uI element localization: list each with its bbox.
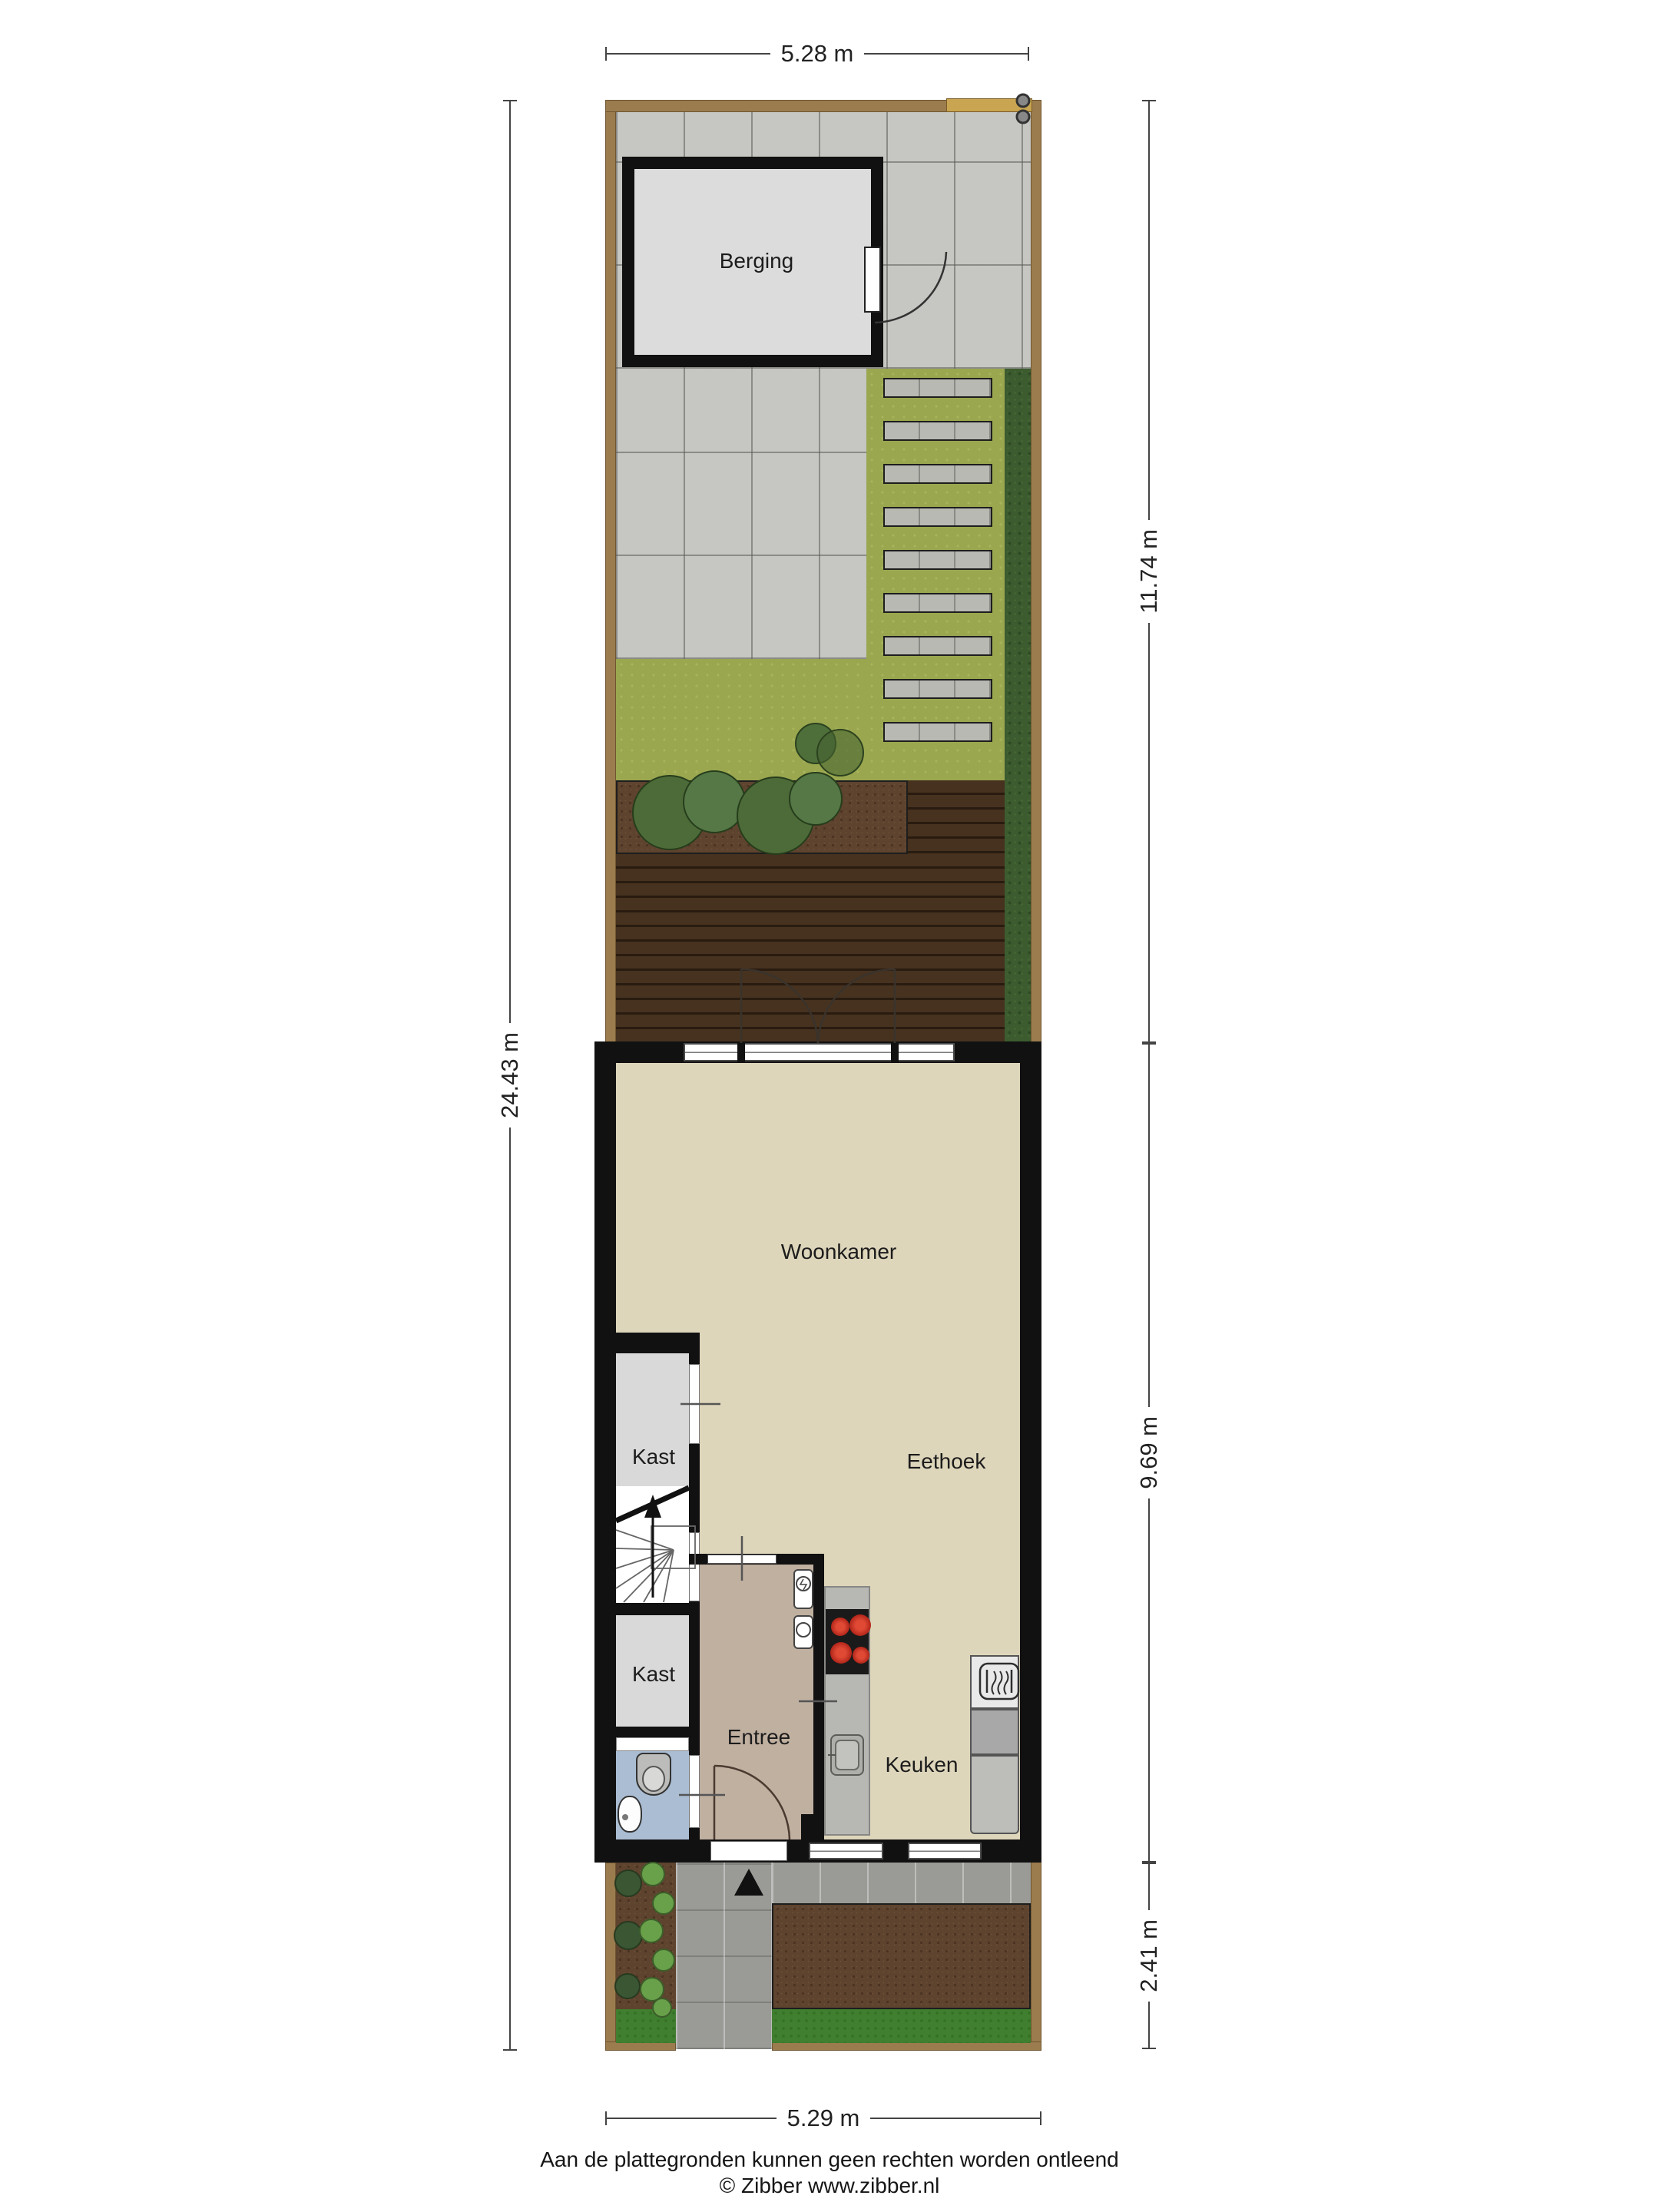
dimension-right-front-label: 2.41 m bbox=[1135, 1910, 1163, 2002]
back-garden-lawn bbox=[616, 659, 866, 783]
dimension-line bbox=[864, 53, 1028, 55]
dimension-line bbox=[1148, 101, 1150, 520]
front-window-2 bbox=[908, 1843, 982, 1859]
dimension-line bbox=[1148, 1045, 1150, 1407]
kitchen-wall bbox=[813, 1554, 824, 1839]
dimension-line bbox=[1148, 623, 1150, 1041]
stepping-stone bbox=[883, 378, 992, 398]
stepping-stone bbox=[883, 636, 992, 656]
dimension-line bbox=[509, 101, 511, 1023]
dimension-top-label: 5.28 m bbox=[770, 40, 865, 68]
front-path bbox=[676, 1863, 772, 2049]
front-lawn-right bbox=[772, 2009, 1031, 2043]
room-label-eethoek: Eethoek bbox=[907, 1449, 986, 1474]
dimension-right-garden: 11.74 m bbox=[1135, 100, 1163, 1043]
tall-unit-base bbox=[970, 1755, 1019, 1834]
floor-plan-page: 5.28 m 5.29 m 24.43 m 11.74 m 9.69 m 2.4… bbox=[0, 0, 1659, 2212]
dimension-tick bbox=[1040, 2111, 1041, 2125]
closet2-bottom-wall bbox=[616, 1727, 689, 1737]
toilet-icon bbox=[636, 1753, 671, 1796]
toilet-threshold bbox=[616, 1737, 689, 1751]
staircase-floor bbox=[616, 1486, 697, 1603]
room-label-keuken: Keuken bbox=[886, 1753, 959, 1777]
cooktop-burner bbox=[849, 1614, 871, 1636]
tall-unit-mid bbox=[970, 1709, 1019, 1755]
back-garden-paving-left bbox=[616, 369, 866, 659]
cooktop-burner bbox=[853, 1647, 869, 1664]
planting-bed bbox=[616, 780, 908, 854]
garden-hedge bbox=[1005, 369, 1031, 1045]
stepping-stone bbox=[883, 507, 992, 527]
front-paving-right bbox=[772, 1863, 1031, 1905]
dimension-left: 24.43 m bbox=[496, 100, 524, 2051]
cooktop-burner bbox=[830, 1642, 852, 1664]
wall-fixture-icon bbox=[793, 1569, 813, 1609]
hall-wall-segment bbox=[689, 1444, 700, 1532]
dimension-left-label: 24.43 m bbox=[496, 1023, 524, 1128]
dimension-line bbox=[607, 2118, 777, 2119]
front-soil-bed-right bbox=[772, 1903, 1031, 2009]
toilet-door bbox=[689, 1755, 700, 1828]
garden-gate bbox=[946, 98, 1032, 112]
house-wall-left bbox=[594, 1041, 616, 1863]
dimension-line bbox=[509, 1128, 511, 2049]
stepping-stone bbox=[883, 593, 992, 613]
hall-wall-segment bbox=[689, 1333, 700, 1364]
deck-terrace bbox=[616, 854, 1005, 1045]
fence-front-left bbox=[605, 1863, 616, 2051]
dimension-right-house: 9.69 m bbox=[1135, 1043, 1163, 1863]
house-wall-right bbox=[1020, 1041, 1041, 1863]
dimension-bottom: 5.29 m bbox=[605, 2104, 1041, 2132]
hall-wall-segment bbox=[689, 1601, 700, 1755]
dimension-line bbox=[1148, 2002, 1150, 2048]
hall-wall-segment bbox=[689, 1828, 700, 1839]
copyright-text: © Zibber www.zibber.nl bbox=[720, 2174, 940, 2198]
dimension-bottom-label: 5.29 m bbox=[777, 2104, 871, 2132]
cooktop-burner bbox=[831, 1618, 849, 1636]
kitchen-sink bbox=[830, 1734, 864, 1776]
dimension-top: 5.28 m bbox=[605, 40, 1029, 68]
closet1-door bbox=[689, 1364, 700, 1444]
dimension-tick bbox=[1028, 47, 1029, 61]
room-label-kast-1: Kast bbox=[632, 1445, 675, 1469]
stepping-stone bbox=[883, 421, 992, 441]
back-garden-lawn-stepping bbox=[866, 369, 1005, 783]
dimension-line bbox=[1148, 1864, 1150, 1910]
wall-fixture-icon bbox=[793, 1615, 813, 1649]
stepping-stone bbox=[883, 679, 992, 699]
dimension-line bbox=[870, 2118, 1040, 2119]
sink-icon bbox=[618, 1796, 642, 1833]
room-label-kast-2: Kast bbox=[632, 1662, 675, 1687]
glazing-mullion bbox=[891, 1043, 899, 1061]
stair-access-opening bbox=[689, 1532, 700, 1601]
dimension-tick bbox=[503, 2049, 517, 2051]
dimension-right-garden-label: 11.74 m bbox=[1135, 520, 1163, 623]
stepping-stone bbox=[883, 722, 992, 742]
glazing-mullion bbox=[737, 1043, 745, 1061]
kitchen-wall-stub bbox=[801, 1814, 813, 1839]
rear-glazed-doors bbox=[684, 1043, 955, 1061]
dimension-right-front: 2.41 m bbox=[1135, 1863, 1163, 2049]
front-door-threshold bbox=[710, 1841, 787, 1861]
dimension-tick bbox=[1142, 2048, 1156, 2049]
room-label-woonkamer: Woonkamer bbox=[781, 1240, 896, 1264]
entree-glazed-door bbox=[707, 1555, 777, 1564]
room-label-entree: Entree bbox=[727, 1725, 791, 1750]
dimension-line bbox=[607, 53, 770, 55]
stepping-stone bbox=[883, 464, 992, 484]
disclaimer-text: Aan de plattegronden kunnen geen rechten… bbox=[540, 2147, 1118, 2172]
dimension-line bbox=[1148, 1498, 1150, 1861]
fence-left bbox=[605, 100, 616, 1043]
room-label-berging: Berging bbox=[720, 249, 794, 273]
deck-upper-right bbox=[908, 780, 1005, 854]
stepping-stone bbox=[883, 550, 992, 570]
front-lawn-left bbox=[616, 2009, 676, 2043]
front-planting-bed-left bbox=[616, 1863, 676, 2009]
dimension-right-house-label: 9.69 m bbox=[1135, 1407, 1163, 1498]
tall-unit-oven bbox=[970, 1655, 1019, 1709]
front-window-1 bbox=[809, 1843, 883, 1859]
